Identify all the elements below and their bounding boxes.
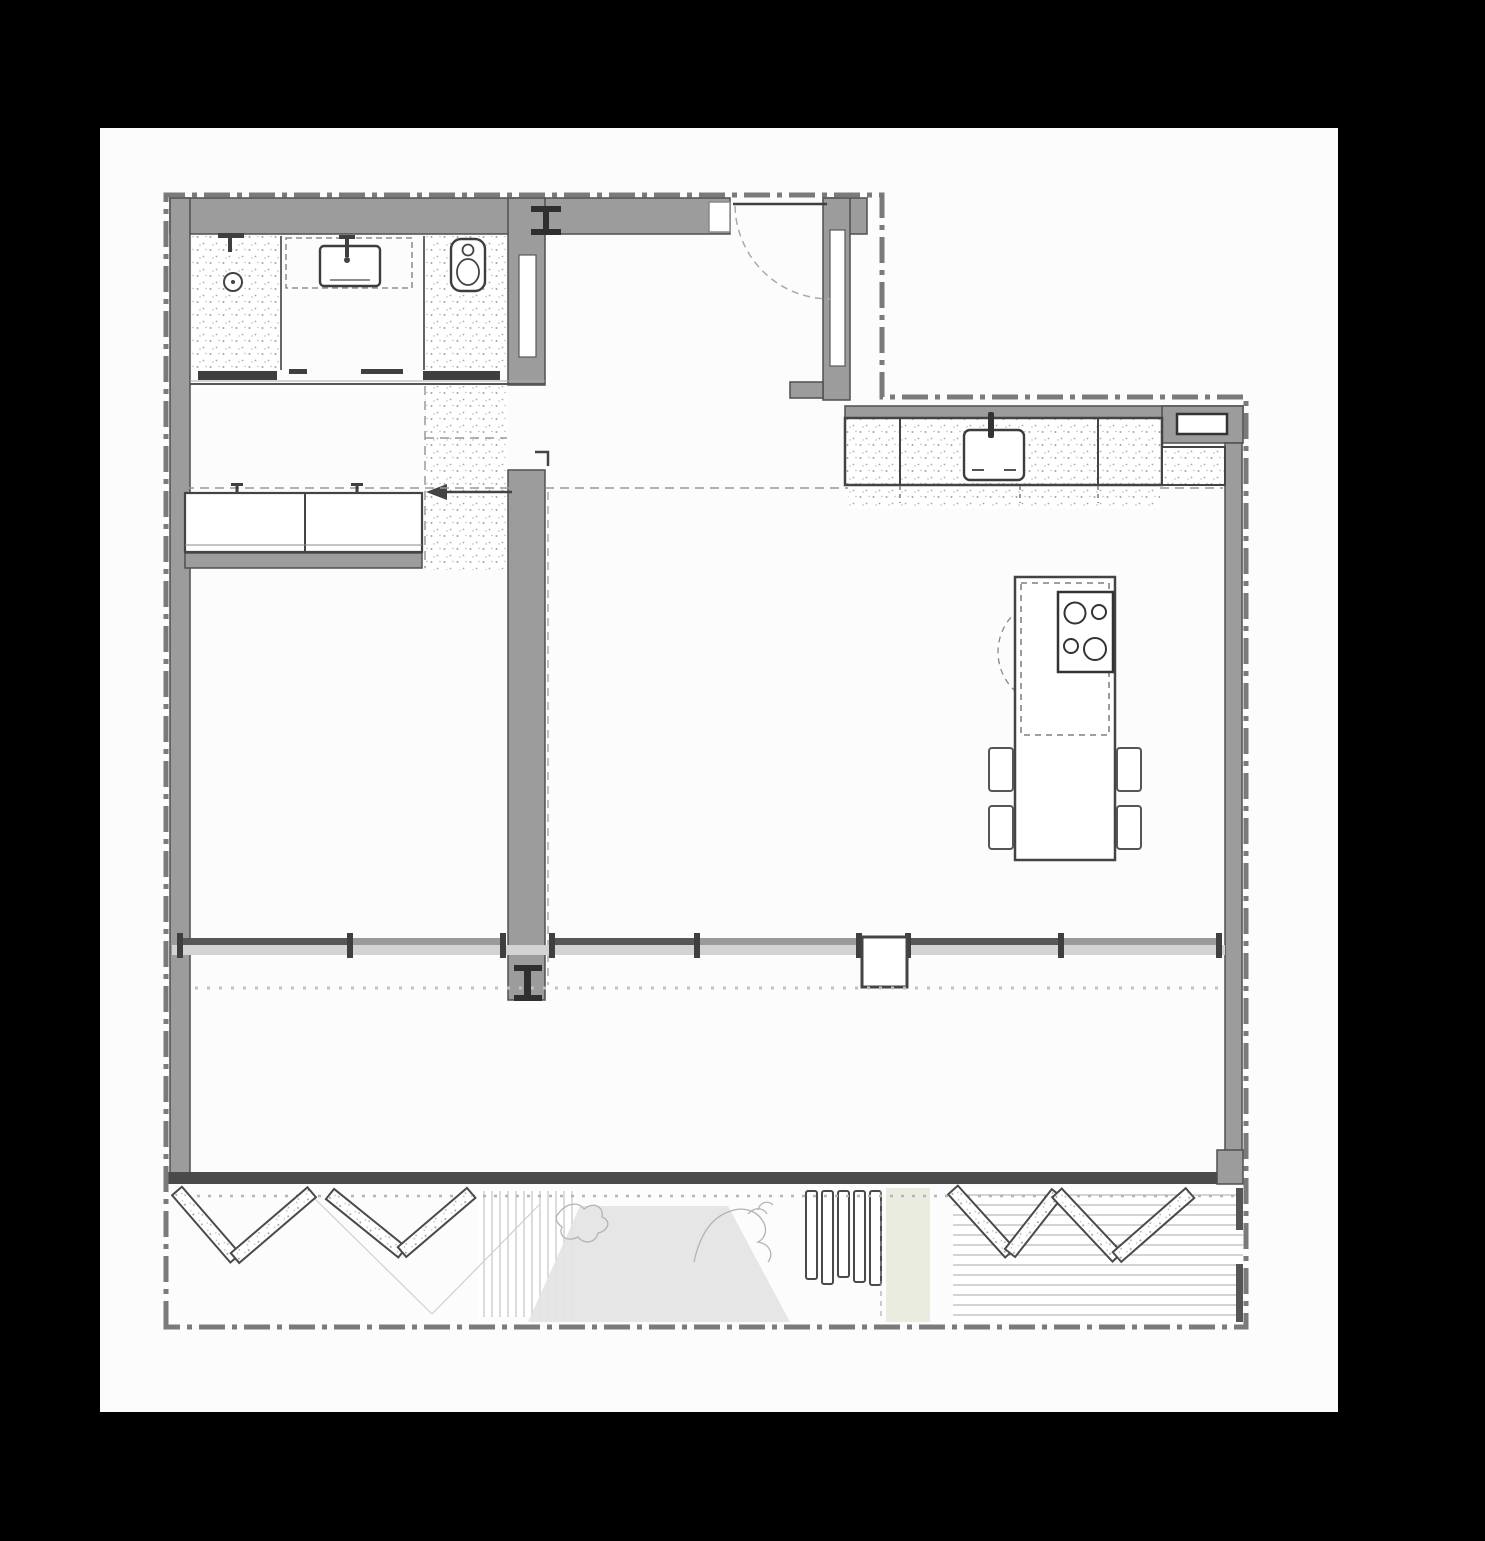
screenshot-stage <box>0 0 1485 1541</box>
counter-right-segment <box>1162 447 1225 485</box>
hollow-column <box>862 937 907 987</box>
toilet-bowl-icon <box>457 259 479 285</box>
dressing-floor-texture <box>425 386 508 570</box>
glazing-segment <box>183 938 353 945</box>
toilet-flush-icon <box>463 245 474 256</box>
deck-edge <box>1236 1264 1243 1322</box>
floor-plan-drawing <box>0 0 1485 1541</box>
shower-floor-texture <box>192 236 280 370</box>
faucet-dot <box>344 257 350 263</box>
deck-boards <box>953 1188 1243 1322</box>
deck-edge <box>1236 1188 1243 1230</box>
stool <box>1117 806 1141 849</box>
glazing-segment <box>699 938 865 945</box>
exterior-wall-top <box>170 198 730 234</box>
sliding-door-shower <box>198 371 277 380</box>
green-ground-band <box>886 1188 930 1322</box>
entry-wall-stub <box>790 382 823 398</box>
terrace-south-wall <box>165 1172 1217 1184</box>
central-wall <box>508 470 545 1000</box>
faucet-stem-icon <box>345 239 349 257</box>
wall-corner-block <box>1217 1150 1243 1184</box>
sliding-door-wc <box>423 371 500 380</box>
exterior-wall-right <box>1225 443 1242 1183</box>
door-track-tick <box>361 369 403 374</box>
stool <box>989 806 1013 849</box>
kitchen-sink-icon <box>964 430 1024 480</box>
bedroom-north-wall <box>185 553 422 568</box>
built-in-appliance-icon <box>1177 414 1227 434</box>
stool <box>1117 748 1141 791</box>
glazing-segment <box>549 938 699 945</box>
shower-drain-dot <box>231 280 235 284</box>
counter-overhang-texture <box>848 487 1160 509</box>
door-frame-slot <box>709 202 730 232</box>
exterior-wall-left <box>170 198 190 1183</box>
faucet-bar-icon <box>339 235 355 239</box>
wardrobe <box>185 493 422 552</box>
kitchen-faucet-icon <box>988 412 994 438</box>
glazing-segment <box>353 938 506 945</box>
glazing-segment <box>1064 938 1218 945</box>
door-track-tick <box>289 369 307 374</box>
central-wall-niche <box>519 255 536 357</box>
shower-head-icon <box>218 233 244 238</box>
stool <box>989 748 1013 791</box>
entry-wall-niche <box>830 230 845 366</box>
shower-arm-icon <box>228 238 232 252</box>
glazing-segment <box>908 938 1064 945</box>
cooktop-icon <box>1058 592 1113 672</box>
